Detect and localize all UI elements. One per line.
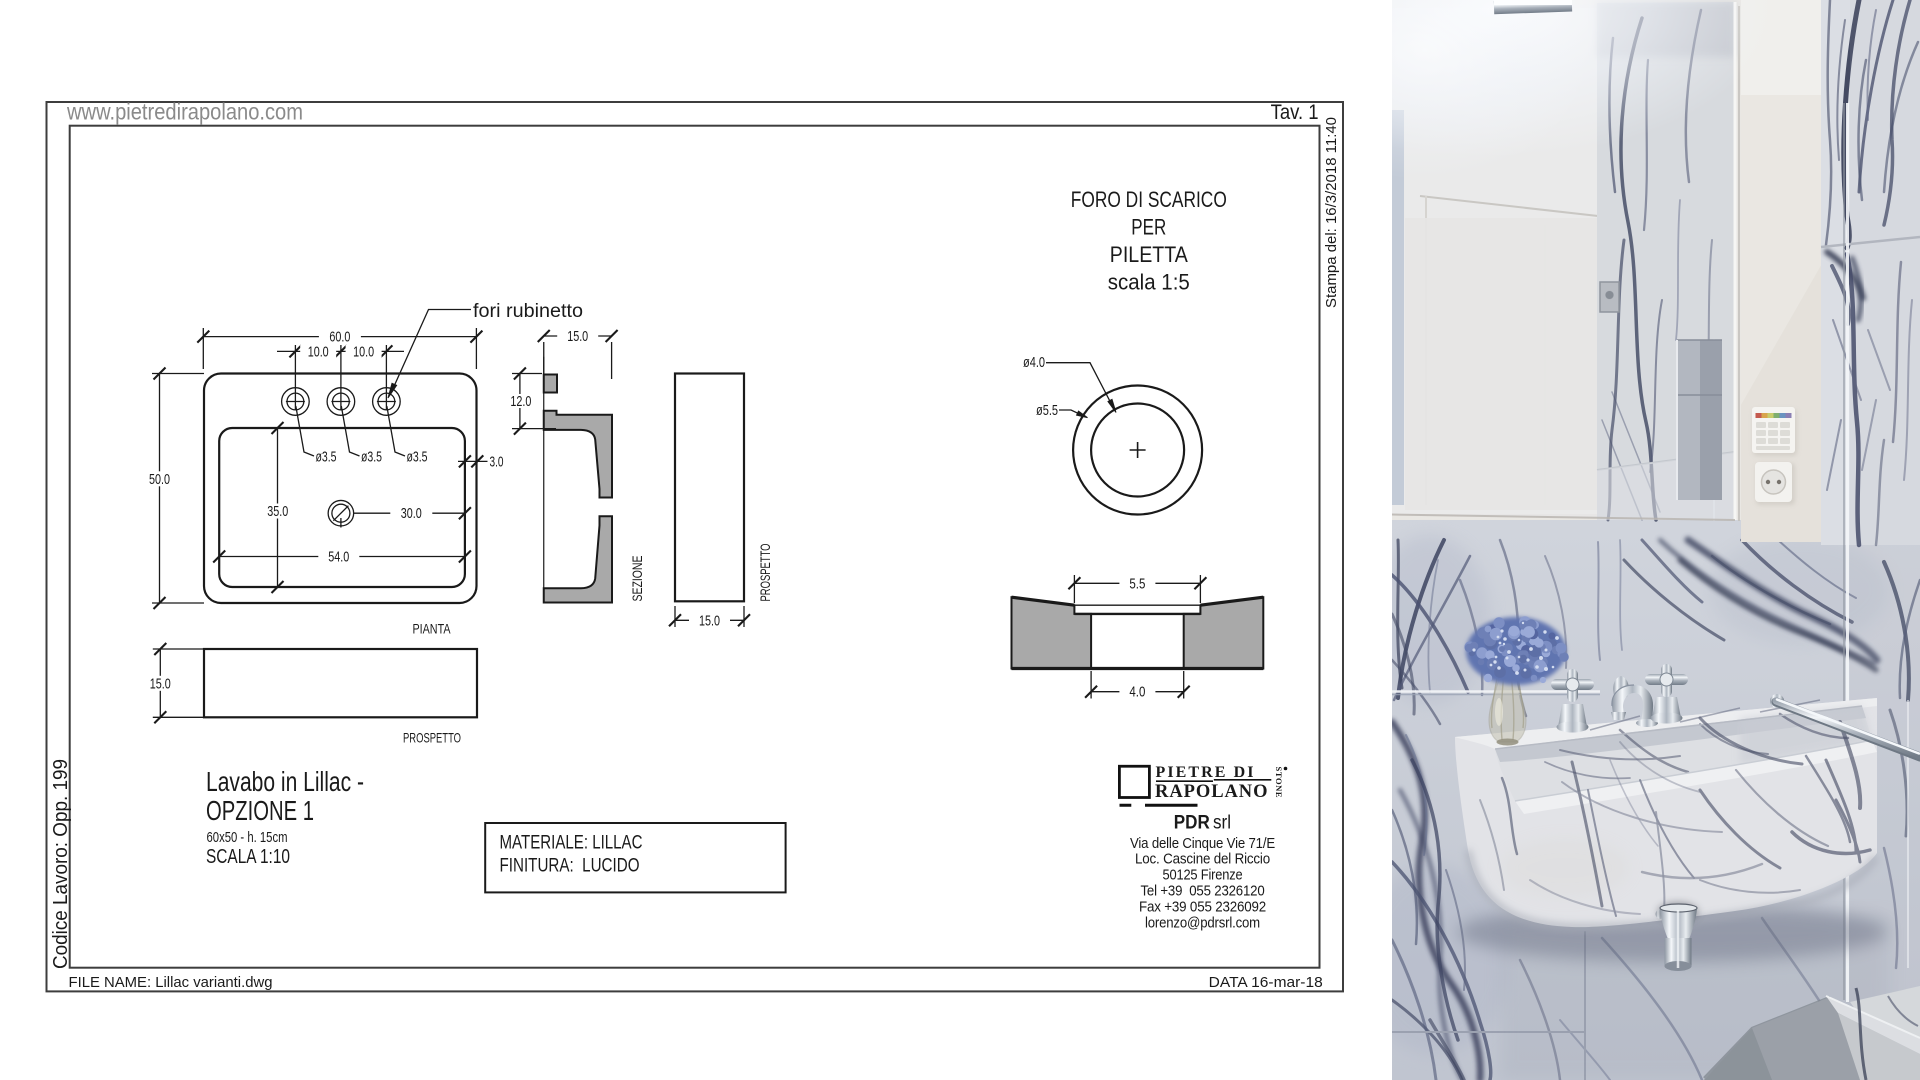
- svg-text:Lavabo in Lillac -: Lavabo in Lillac -: [206, 766, 364, 797]
- svg-text:PDR: PDR: [1174, 813, 1210, 834]
- svg-text:Loc. Cascine del Riccio: Loc. Cascine del Riccio: [1135, 851, 1270, 868]
- svg-text:PROSPETTO: PROSPETTO: [757, 543, 773, 601]
- svg-text:15.0: 15.0: [567, 328, 588, 345]
- svg-text:www.pietredirapolano.com: www.pietredirapolano.com: [66, 99, 303, 125]
- svg-text:4.0: 4.0: [1129, 684, 1145, 701]
- svg-text:srl: srl: [1213, 813, 1231, 834]
- svg-text:PER: PER: [1131, 215, 1166, 240]
- svg-text:60.0: 60.0: [329, 329, 350, 346]
- svg-text:FILE NAME: Lillac varianti.dwg: FILE NAME: Lillac varianti.dwg: [69, 975, 273, 991]
- svg-text:Tel +39 055 2326120: Tel +39 055 2326120: [1141, 883, 1265, 900]
- svg-text:10.0: 10.0: [353, 343, 374, 360]
- svg-text:DATA 16-mar-18: DATA 16-mar-18: [1209, 974, 1323, 991]
- svg-text:Tav. 1: Tav. 1: [1271, 101, 1319, 124]
- svg-text:FINITURA: LUCIDO: FINITURA: LUCIDO: [500, 855, 640, 877]
- svg-text:PROSPETTO: PROSPETTO: [403, 730, 461, 746]
- svg-text:PIETRE DI: PIETRE DI: [1156, 764, 1254, 781]
- svg-text:ø3.5: ø3.5: [361, 449, 382, 466]
- svg-text:Codice Lavoro: Opp. 199: Codice Lavoro: Opp. 199: [50, 759, 72, 969]
- svg-text:5.5: 5.5: [1129, 575, 1145, 592]
- svg-text:fori rubinetto: fori rubinetto: [473, 301, 583, 322]
- svg-text:Via delle Cinque Vie 71/E: Via delle Cinque Vie 71/E: [1130, 835, 1275, 852]
- svg-text:ø5.5: ø5.5: [1036, 402, 1058, 419]
- svg-text:54.0: 54.0: [328, 549, 349, 566]
- svg-text:ø3.5: ø3.5: [316, 449, 337, 466]
- svg-text:ø3.5: ø3.5: [407, 449, 428, 466]
- svg-text:MATERIALE: LILLAC: MATERIALE: LILLAC: [500, 832, 643, 854]
- svg-text:PILETTA: PILETTA: [1110, 242, 1188, 267]
- svg-text:3.0: 3.0: [490, 453, 504, 470]
- svg-text:SCALA 1:10: SCALA 1:10: [206, 845, 290, 868]
- svg-text:STONE: STONE: [1274, 767, 1284, 799]
- svg-text:ø4.0: ø4.0: [1023, 354, 1045, 371]
- svg-text:30.0: 30.0: [401, 505, 422, 522]
- svg-text:RAPOLANO: RAPOLANO: [1155, 782, 1268, 802]
- svg-text:SEZIONE: SEZIONE: [629, 556, 645, 602]
- svg-text:50125 Firenze: 50125 Firenze: [1163, 866, 1243, 883]
- svg-text:OPZIONE 1: OPZIONE 1: [206, 795, 314, 826]
- svg-text:60x50 - h. 15cm: 60x50 - h. 15cm: [207, 829, 288, 846]
- svg-text:12.0: 12.0: [510, 393, 531, 410]
- svg-text:Fax +39 055 2326092: Fax +39 055 2326092: [1139, 899, 1266, 916]
- svg-text:FORO DI SCARICO: FORO DI SCARICO: [1071, 187, 1227, 212]
- svg-text:PIANTA: PIANTA: [413, 621, 452, 637]
- svg-text:35.0: 35.0: [267, 503, 288, 520]
- svg-text:Stampa del: 16/3/2018 11:40: Stampa del: 16/3/2018 11:40: [1324, 117, 1340, 308]
- svg-text:lorenzo@pdrsrl.com: lorenzo@pdrsrl.com: [1145, 915, 1260, 932]
- svg-text:50.0: 50.0: [149, 471, 170, 488]
- svg-text:15.0: 15.0: [699, 612, 720, 629]
- svg-text:10.0: 10.0: [308, 343, 329, 360]
- svg-text:15.0: 15.0: [150, 675, 171, 692]
- svg-text:scala 1:5: scala 1:5: [1108, 270, 1190, 295]
